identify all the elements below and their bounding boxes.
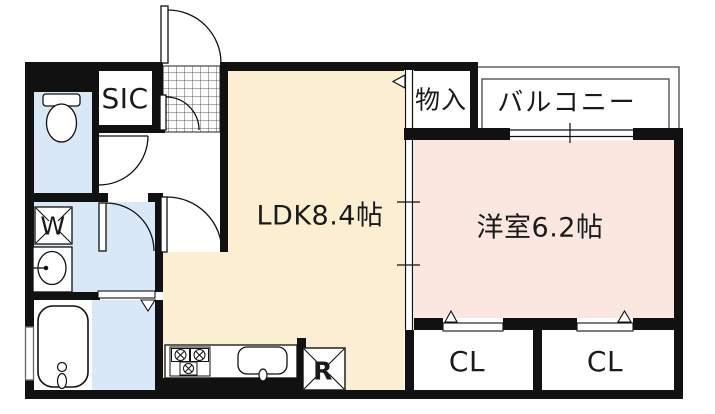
refrigerator-label: R [313, 359, 333, 384]
wall-western-cl-c [633, 318, 683, 330]
wall-top-right [228, 62, 478, 71]
sic-room-label: SIC [101, 85, 148, 113]
washbasin-fixture [33, 247, 72, 292]
closet-right-label: CL [587, 348, 623, 376]
washer-label: W [40, 214, 65, 239]
wall-storage-right [470, 62, 478, 132]
bathtub-fixture [38, 306, 88, 389]
storage-room-label: 物入 [415, 88, 467, 113]
western-room-label: 洋室6.2帖 [477, 215, 604, 242]
toilet-door [99, 136, 148, 185]
stove-fixture [170, 347, 210, 376]
wall-washroom-bathroom [25, 292, 100, 300]
ldk-room-label: LDK8.4帖 [257, 203, 384, 230]
bathroom-window [26, 327, 34, 380]
wall-right [674, 128, 683, 399]
wall-cl-divider [533, 330, 542, 390]
balcony-label: バルコニー [497, 90, 636, 116]
ldk-door [161, 197, 222, 252]
wall-bottom [25, 390, 683, 399]
wall-kitchen-base [160, 378, 307, 390]
wall-western-cl-b [503, 318, 577, 330]
wall-bathroom-ldk [155, 300, 163, 390]
floor-plan: SIC 物入 バルコニー LDK8.4帖 洋室6.2帖 CL CL W R [0, 0, 715, 414]
wall-western-top-a [404, 128, 510, 140]
entryway-tiles [163, 66, 220, 132]
entrance-door [161, 6, 221, 63]
closet-left-label: CL [449, 348, 485, 376]
wall-entry-ldk [220, 62, 228, 252]
wall-cl-left [405, 330, 414, 390]
wall-hall-bottom [25, 193, 108, 202]
